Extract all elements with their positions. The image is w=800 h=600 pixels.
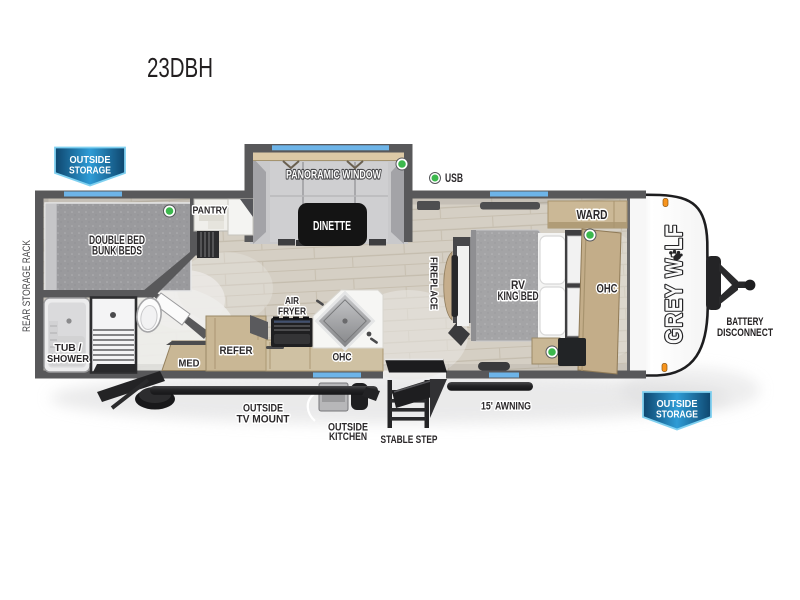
svg-text:OUTSIDE: OUTSIDE <box>70 155 111 166</box>
svg-text:KING BED: KING BED <box>498 291 539 303</box>
svg-text:TV MOUNT: TV MOUNT <box>237 414 290 426</box>
svg-text:PANTRY: PANTRY <box>193 205 228 217</box>
svg-text:OHC: OHC <box>597 282 618 296</box>
svg-text:PANORAMIC WINDOW: PANORAMIC WINDOW <box>286 170 381 182</box>
svg-text:STORAGE: STORAGE <box>656 410 698 421</box>
svg-text:FRYER: FRYER <box>278 306 306 318</box>
svg-text:MED: MED <box>179 358 200 370</box>
svg-text:USB: USB <box>445 173 463 185</box>
svg-text:SHOWER: SHOWER <box>47 353 89 365</box>
svg-text:BUNK BEDS: BUNK BEDS <box>92 246 142 258</box>
svg-text:DISCONNECT: DISCONNECT <box>717 327 773 339</box>
svg-text:23DBH: 23DBH <box>147 52 213 83</box>
svg-text:REFER: REFER <box>220 345 253 357</box>
svg-text:REAR STORAGE RACK: REAR STORAGE RACK <box>21 239 33 332</box>
svg-text:DINETTE: DINETTE <box>313 219 351 233</box>
svg-text:WARD: WARD <box>577 208 608 222</box>
svg-text:STORAGE: STORAGE <box>69 166 111 177</box>
svg-text:GREY W·LF: GREY W·LF <box>661 224 688 344</box>
svg-text:FIREPLACE: FIREPLACE <box>428 257 440 310</box>
svg-text:KITCHEN: KITCHEN <box>329 431 367 443</box>
svg-text:OHC: OHC <box>333 352 352 364</box>
svg-text:STABLE STEP: STABLE STEP <box>381 434 438 446</box>
svg-text:OUTSIDE: OUTSIDE <box>657 399 698 410</box>
svg-text:15' AWNING: 15' AWNING <box>481 401 531 413</box>
